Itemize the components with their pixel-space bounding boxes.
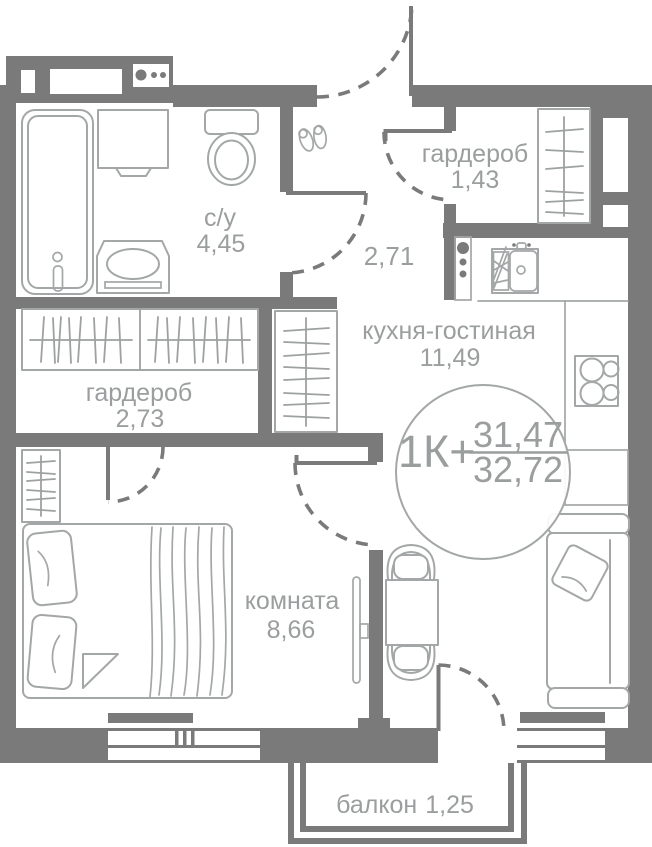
toilet — [205, 110, 258, 185]
balcony-label-text: балкон — [336, 791, 417, 819]
badge-area-lower: 32,72 — [473, 449, 563, 490]
room-label-bathroom: с/у — [204, 204, 236, 232]
chair — [387, 646, 434, 680]
floor-plan: 1К+ 31,47 32,72 с/у 4,45 гардероб 1,43 2… — [0, 0, 652, 847]
room-label-balcony: балкон1,25 — [336, 791, 474, 819]
entry-door — [317, 4, 412, 97]
hall-closet — [275, 311, 337, 432]
sofa — [547, 514, 629, 708]
wall-niche — [603, 205, 628, 227]
dining-table — [386, 580, 438, 645]
kitchen-sink — [492, 243, 538, 293]
radiator — [108, 713, 193, 723]
bathtub — [22, 110, 93, 294]
wall-niche — [50, 69, 122, 94]
bed — [23, 524, 232, 698]
wardrobe-hall-closet — [538, 109, 590, 223]
washbasin — [97, 241, 169, 293]
wall-niche — [21, 70, 35, 93]
radiator — [520, 712, 605, 723]
room-area-wardrobe-hall: 1,43 — [451, 166, 500, 194]
area-badge: 1К+ 31,47 32,72 — [396, 385, 570, 559]
room-area-bedroom: 8,66 — [267, 616, 316, 644]
bathroom-furniture — [22, 110, 258, 294]
room-area-wardrobe-bedroom: 2,73 — [116, 405, 165, 433]
bedroom-closet — [22, 450, 60, 522]
wall-niche — [603, 118, 628, 192]
bedroom-door — [295, 455, 377, 545]
room-label-kitchen-living: кухня-гостиная — [362, 317, 536, 345]
room-label-bedroom: комната — [245, 587, 340, 615]
badge-type-label: 1К+ — [398, 426, 476, 477]
room-label-wardrobe-bedroom: гардероб — [86, 379, 192, 407]
room-label-wardrobe-hall: гардероб — [422, 140, 528, 168]
balcony-area-text: 1,25 — [425, 791, 474, 819]
chair — [387, 545, 434, 579]
washing-machine — [98, 110, 168, 176]
floor-plan-page: 1К+ 31,47 32,72 с/у 4,45 гардероб 1,43 2… — [0, 0, 652, 847]
room-area-bathroom: 4,45 — [197, 230, 246, 258]
slippers-icon — [297, 125, 328, 153]
bedroom-furniture — [22, 450, 368, 698]
balcony-door — [439, 665, 505, 731]
room-area-hallway: 2,71 — [364, 241, 415, 271]
room-area-kitchen-living: 11,49 — [420, 344, 481, 372]
plumbing-riser — [455, 237, 471, 300]
balcony-door-opening — [438, 728, 517, 763]
bathroom-door — [286, 193, 366, 273]
tv — [353, 577, 368, 683]
wardrobe-bedroom-closet — [22, 309, 258, 370]
stove — [575, 356, 619, 406]
wardrobe-bedroom-door — [108, 447, 163, 502]
